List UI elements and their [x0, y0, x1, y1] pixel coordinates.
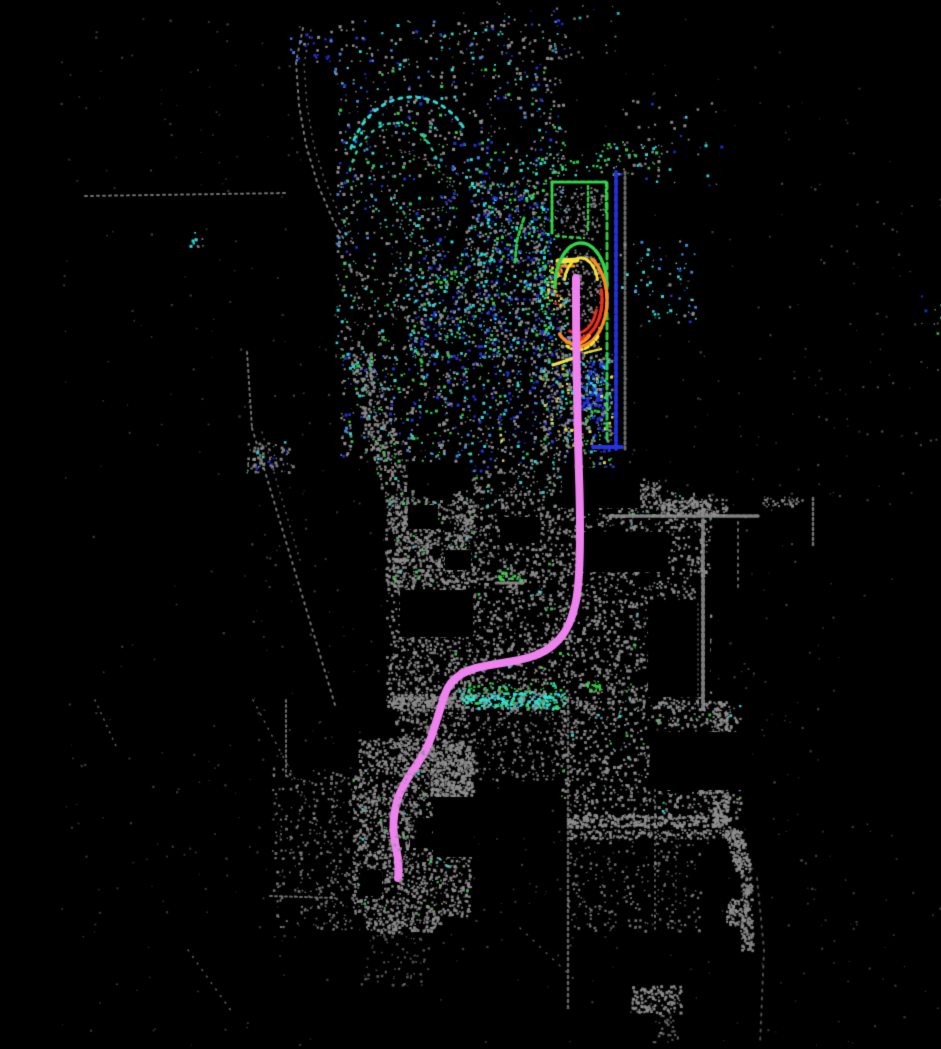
point-cloud-canvas[interactable] — [0, 0, 941, 1049]
screenshot-root: { "meta": { "width": 941, "height": 1049… — [0, 0, 941, 1049]
point-cloud-viewport — [0, 0, 941, 1049]
